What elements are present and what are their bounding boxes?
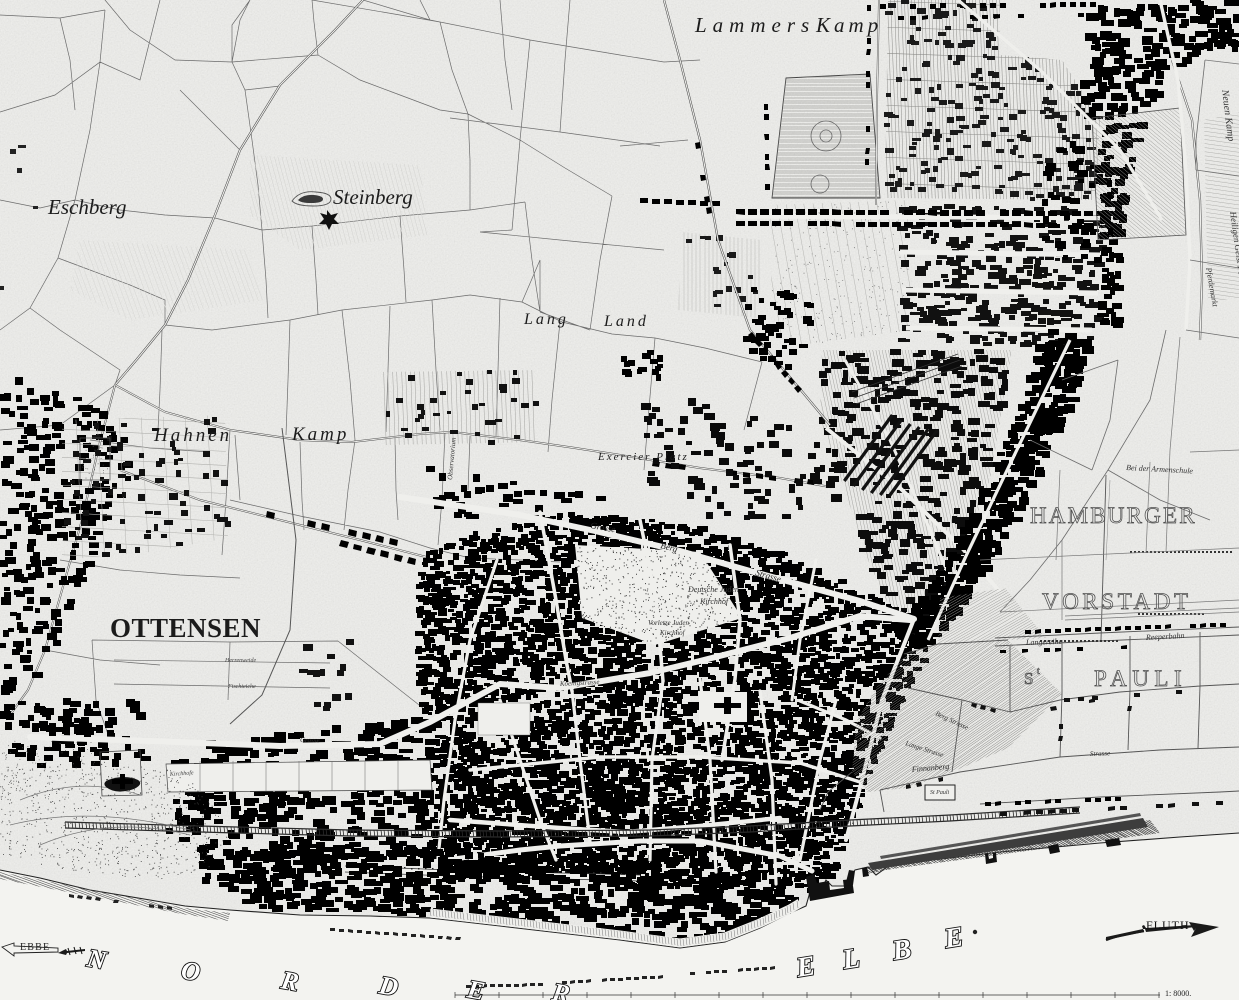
svg-text:Kirchhof: Kirchhof bbox=[699, 597, 730, 606]
svg-text:1: 8000.: 1: 8000. bbox=[1165, 989, 1191, 998]
svg-text:Kamp: Kamp bbox=[815, 13, 882, 37]
svg-text:Lammers: Lammers bbox=[694, 13, 815, 37]
svg-text:Steinberg: Steinberg bbox=[333, 185, 413, 209]
svg-text:Grosse: Grosse bbox=[300, 736, 320, 744]
svg-text:Deutsche Juden: Deutsche Juden bbox=[687, 585, 739, 594]
svg-text:PAULI: PAULI bbox=[1094, 666, 1187, 691]
svg-text:Lang: Lang bbox=[523, 311, 569, 328]
svg-text:EBBE: EBBE bbox=[20, 942, 50, 953]
svg-text:S: S bbox=[1024, 669, 1033, 688]
svg-text:OTTENSEN: OTTENSEN bbox=[110, 613, 261, 643]
svg-text:FLUTH: FLUTH bbox=[1146, 918, 1190, 932]
svg-text:Herrenweide: Herrenweide bbox=[224, 658, 256, 664]
svg-text:Land: Land bbox=[603, 313, 649, 330]
svg-text:Vorletze Juden: Vorletze Juden bbox=[648, 619, 690, 627]
svg-text:Exercier Platz: Exercier Platz bbox=[597, 451, 689, 463]
svg-text:St Pauli: St Pauli bbox=[930, 790, 949, 796]
svg-text:Langereihe: Langereihe bbox=[1025, 637, 1063, 647]
svg-text:Kirchhof: Kirchhof bbox=[659, 629, 686, 637]
svg-text:HAMBURGER: HAMBURGER bbox=[1030, 503, 1197, 528]
svg-text:Strasse: Strasse bbox=[1090, 749, 1111, 758]
svg-text:t: t bbox=[1037, 666, 1040, 677]
svg-text:Eschberg: Eschberg bbox=[47, 195, 127, 219]
svg-text:Hahnen: Hahnen bbox=[153, 425, 232, 446]
svg-text:Kamp: Kamp bbox=[291, 424, 349, 445]
svg-text:VORSTADT: VORSTADT bbox=[1042, 589, 1192, 614]
svg-text:Fischteiche: Fischteiche bbox=[227, 684, 256, 690]
